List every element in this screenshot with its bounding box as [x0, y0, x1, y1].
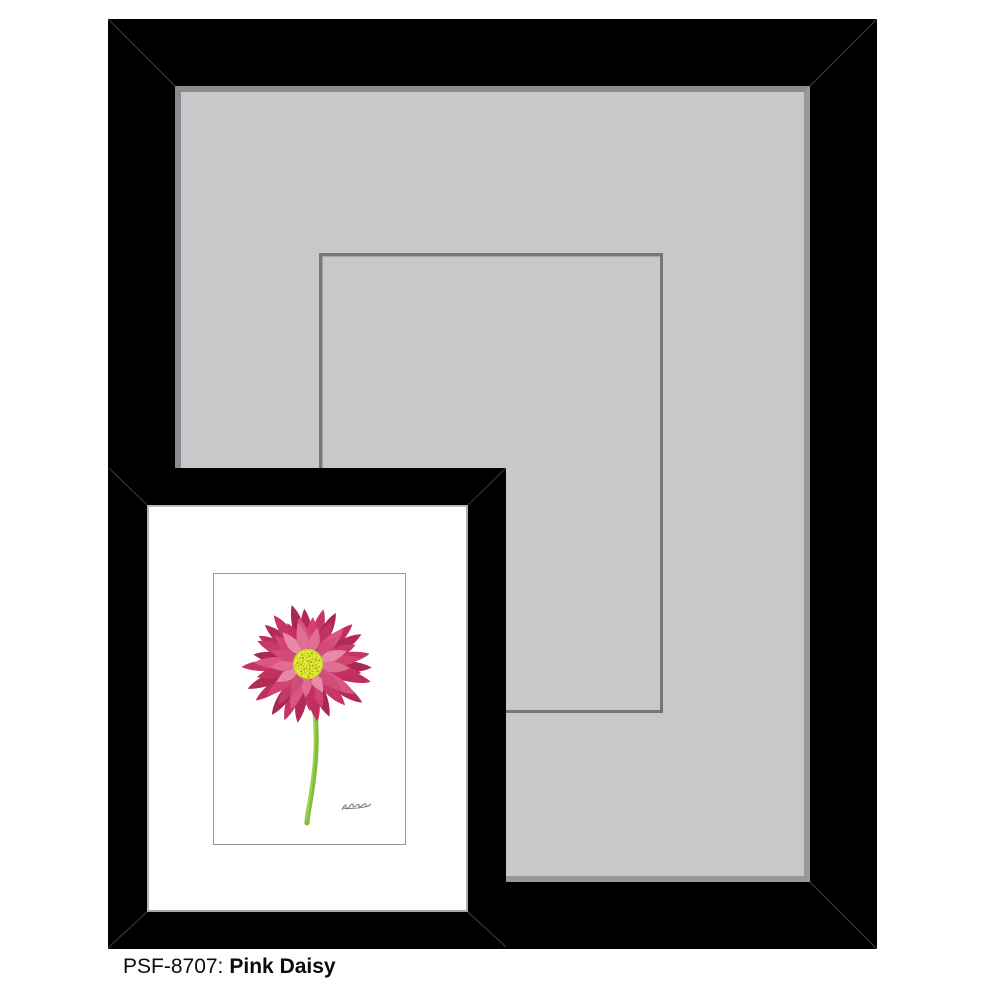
small-frame-mat: [147, 505, 468, 912]
caption-title: Pink Daisy: [229, 955, 335, 978]
caption: PSF-8707:Pink Daisy: [123, 955, 336, 979]
artwork-paper: [213, 573, 406, 845]
product-photo: PSF-8707:Pink Daisy: [0, 0, 984, 984]
artist-signature: [342, 804, 371, 810]
caption-sku: PSF-8707:: [123, 955, 223, 978]
flower-illustration: [214, 574, 405, 844]
small-frame: [109, 468, 506, 947]
